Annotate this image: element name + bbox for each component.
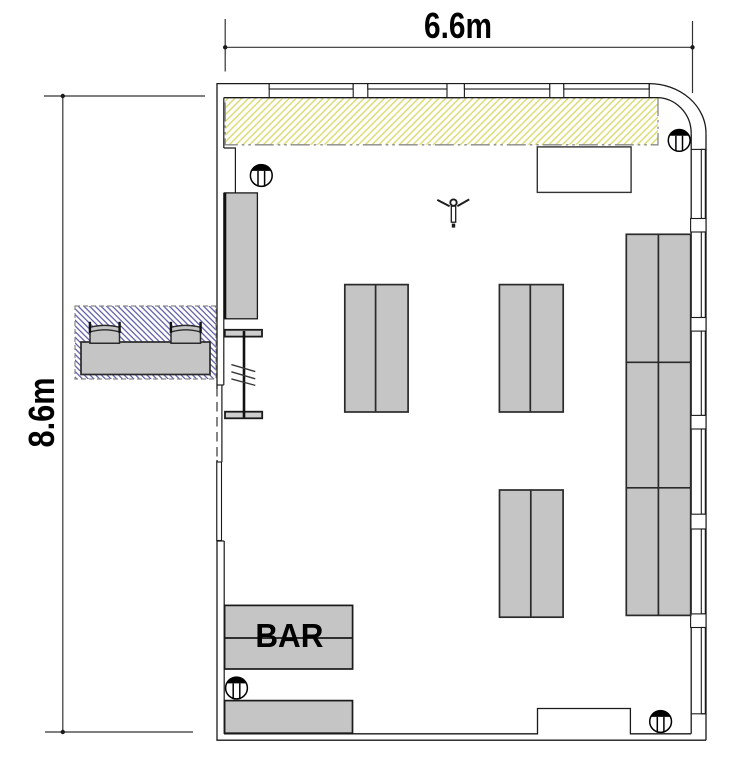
svg-text:6.6m: 6.6m xyxy=(424,5,492,46)
svg-text:BAR: BAR xyxy=(255,618,323,655)
svg-text:8.6m: 8.6m xyxy=(21,378,62,448)
